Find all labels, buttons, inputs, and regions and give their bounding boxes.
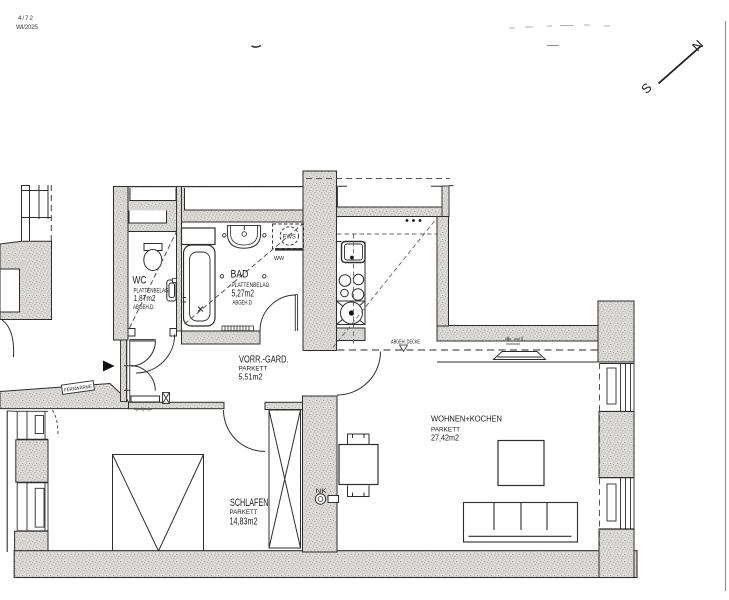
svg-text:5,51m2: 5,51m2 [239, 372, 263, 382]
svg-text:27,42m2: 27,42m2 [431, 433, 459, 443]
svg-text:5,27m2: 5,27m2 [232, 289, 255, 300]
svg-text:WOHNEN+KOCHEN: WOHNEN+KOCHEN [431, 413, 502, 423]
svg-text:ABGEH.D.: ABGEH.D. [233, 299, 254, 306]
svg-text:SCHLAFEN: SCHLAFEN [230, 497, 269, 509]
svg-text:WC: WC [133, 275, 147, 287]
svg-text:4/72: 4/72 [18, 15, 33, 22]
svg-text:WI/2025: WI/2025 [16, 24, 38, 31]
svg-text:PARKETT: PARKETT [230, 509, 258, 516]
svg-text:BAD: BAD [231, 269, 249, 281]
svg-text:WW: WW [274, 256, 285, 262]
svg-text:ABGEH.D.: ABGEH.D. [133, 304, 155, 311]
svg-text:1,87m2: 1,87m2 [134, 293, 156, 303]
svg-text:14,83m2: 14,83m2 [230, 517, 258, 528]
svg-text:VORR.-GARD.: VORR.-GARD. [239, 354, 289, 366]
